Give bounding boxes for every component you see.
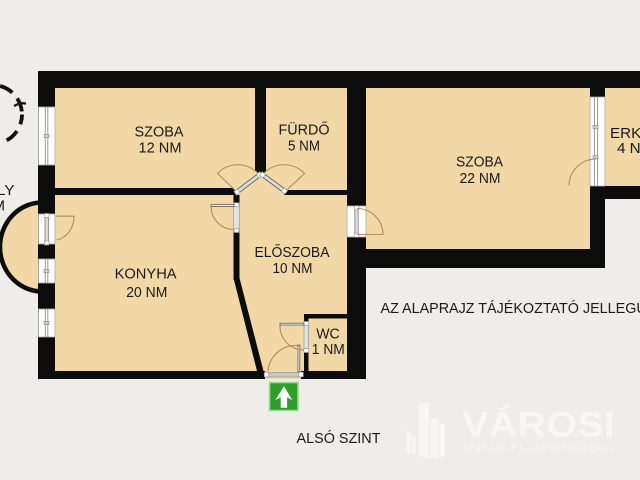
svg-text:ERKÉLY: ERKÉLY (0, 182, 15, 199)
svg-text:5 NM: 5 NM (288, 138, 320, 155)
svg-text:4 NM: 4 NM (617, 140, 640, 157)
svg-text:ALSÓ SZINT: ALSÓ SZINT (297, 430, 381, 447)
svg-text:SZOBA: SZOBA (456, 154, 504, 171)
svg-text:1 NM: 1 NM (312, 341, 345, 358)
svg-text:20 NM: 20 NM (126, 284, 167, 301)
svg-text:KONYHA: KONYHA (115, 266, 178, 283)
svg-text:FÜRDŐ: FÜRDŐ (279, 120, 330, 138)
svg-text:10 NM: 10 NM (273, 260, 313, 277)
svg-text:SZOBA: SZOBA (135, 123, 185, 140)
svg-text:INGATLANIRODA: INGATLANIRODA (463, 443, 615, 454)
svg-text:22 NM: 22 NM (460, 170, 501, 187)
svg-text:12 NM: 12 NM (139, 140, 182, 157)
svg-text:1 NM: 1 NM (0, 198, 5, 215)
svg-text:ELŐSZOBA: ELŐSZOBA (255, 244, 331, 261)
svg-text:VÁROSI: VÁROSI (462, 404, 615, 444)
svg-text:AZ ALAPRAJZ TÁJÉKOZTATÓ JELLEG: AZ ALAPRAJZ TÁJÉKOZTATÓ JELLEGŰ (381, 300, 640, 317)
